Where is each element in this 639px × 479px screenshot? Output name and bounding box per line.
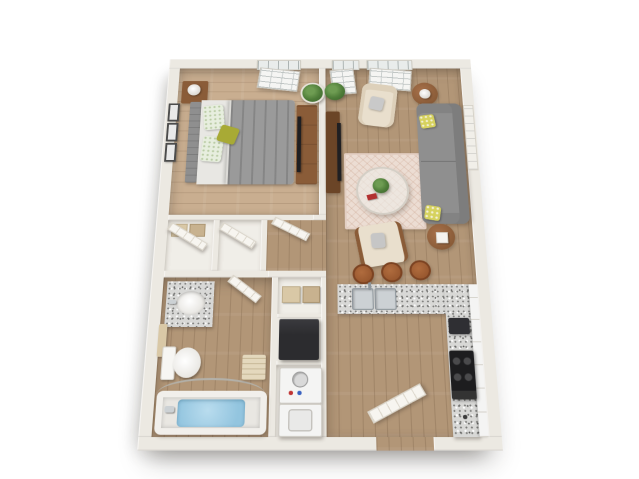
kitchen-faucet (368, 282, 371, 290)
accent-chair-pillow (370, 232, 386, 248)
nightstand-lamp (187, 84, 201, 95)
wall-bottom-left-seg (137, 437, 376, 451)
bedroom-corner-plant (300, 82, 324, 103)
sofa-pillow-bottom (423, 204, 441, 221)
pantry-basket-1 (281, 286, 300, 303)
apartment-floorplan (137, 59, 503, 450)
living-tv (336, 123, 340, 181)
sofa-cushion-line (421, 160, 456, 161)
living-plant (324, 82, 345, 100)
side-table-top-lamp (419, 89, 431, 99)
kitchen-sink-left (351, 288, 373, 310)
entry-threshold (376, 437, 434, 451)
wall-pantry-fridge-divider (277, 313, 321, 317)
floorplan-canvas (0, 0, 639, 479)
washer-knob-red (288, 390, 292, 394)
bedroom-tv (296, 116, 300, 172)
wall-bath-top-seg1 (163, 270, 231, 277)
vanity-faucet (167, 299, 176, 303)
bedroom-window-open-pane (256, 67, 300, 92)
side-table-bottom-box (435, 232, 448, 243)
bathtub-water (176, 399, 245, 427)
range-stove (449, 350, 477, 399)
microwave (448, 317, 470, 333)
sofa-pillow-top (418, 113, 436, 128)
bar-stool-1 (352, 264, 374, 284)
kitchen-sink-right (374, 288, 396, 310)
bedroom-wall-frame-2 (165, 123, 178, 141)
wall-bottom-right-seg (433, 437, 502, 451)
refrigerator (278, 318, 318, 359)
wall-fridge-laundry-divider (276, 361, 321, 365)
wall-closet2-right (259, 220, 266, 271)
washer-knob-blue (297, 390, 301, 394)
wall-bedroom-bottom-seg2 (313, 214, 326, 219)
washer-dial (292, 371, 308, 387)
bed-duvet (227, 100, 294, 184)
vanity-sink (175, 291, 205, 315)
coffee-table-plant (372, 178, 389, 193)
bedroom-wall-frame-3 (164, 143, 177, 162)
armchair-pillow (367, 95, 384, 110)
bathtub-faucet (164, 405, 174, 412)
bedroom-wall-frame-1 (167, 103, 180, 121)
pantry-basket-2 (302, 286, 320, 303)
bar-stool-2 (380, 262, 402, 282)
dryer-door (288, 409, 312, 431)
bar-stool-3 (409, 260, 431, 280)
wall-bath-top-seg2 (267, 270, 325, 277)
bath-mat (241, 354, 265, 379)
wall-bedroom-bottom-seg1 (168, 214, 273, 219)
wall-top (168, 59, 470, 68)
cabinet-knob (462, 414, 467, 418)
